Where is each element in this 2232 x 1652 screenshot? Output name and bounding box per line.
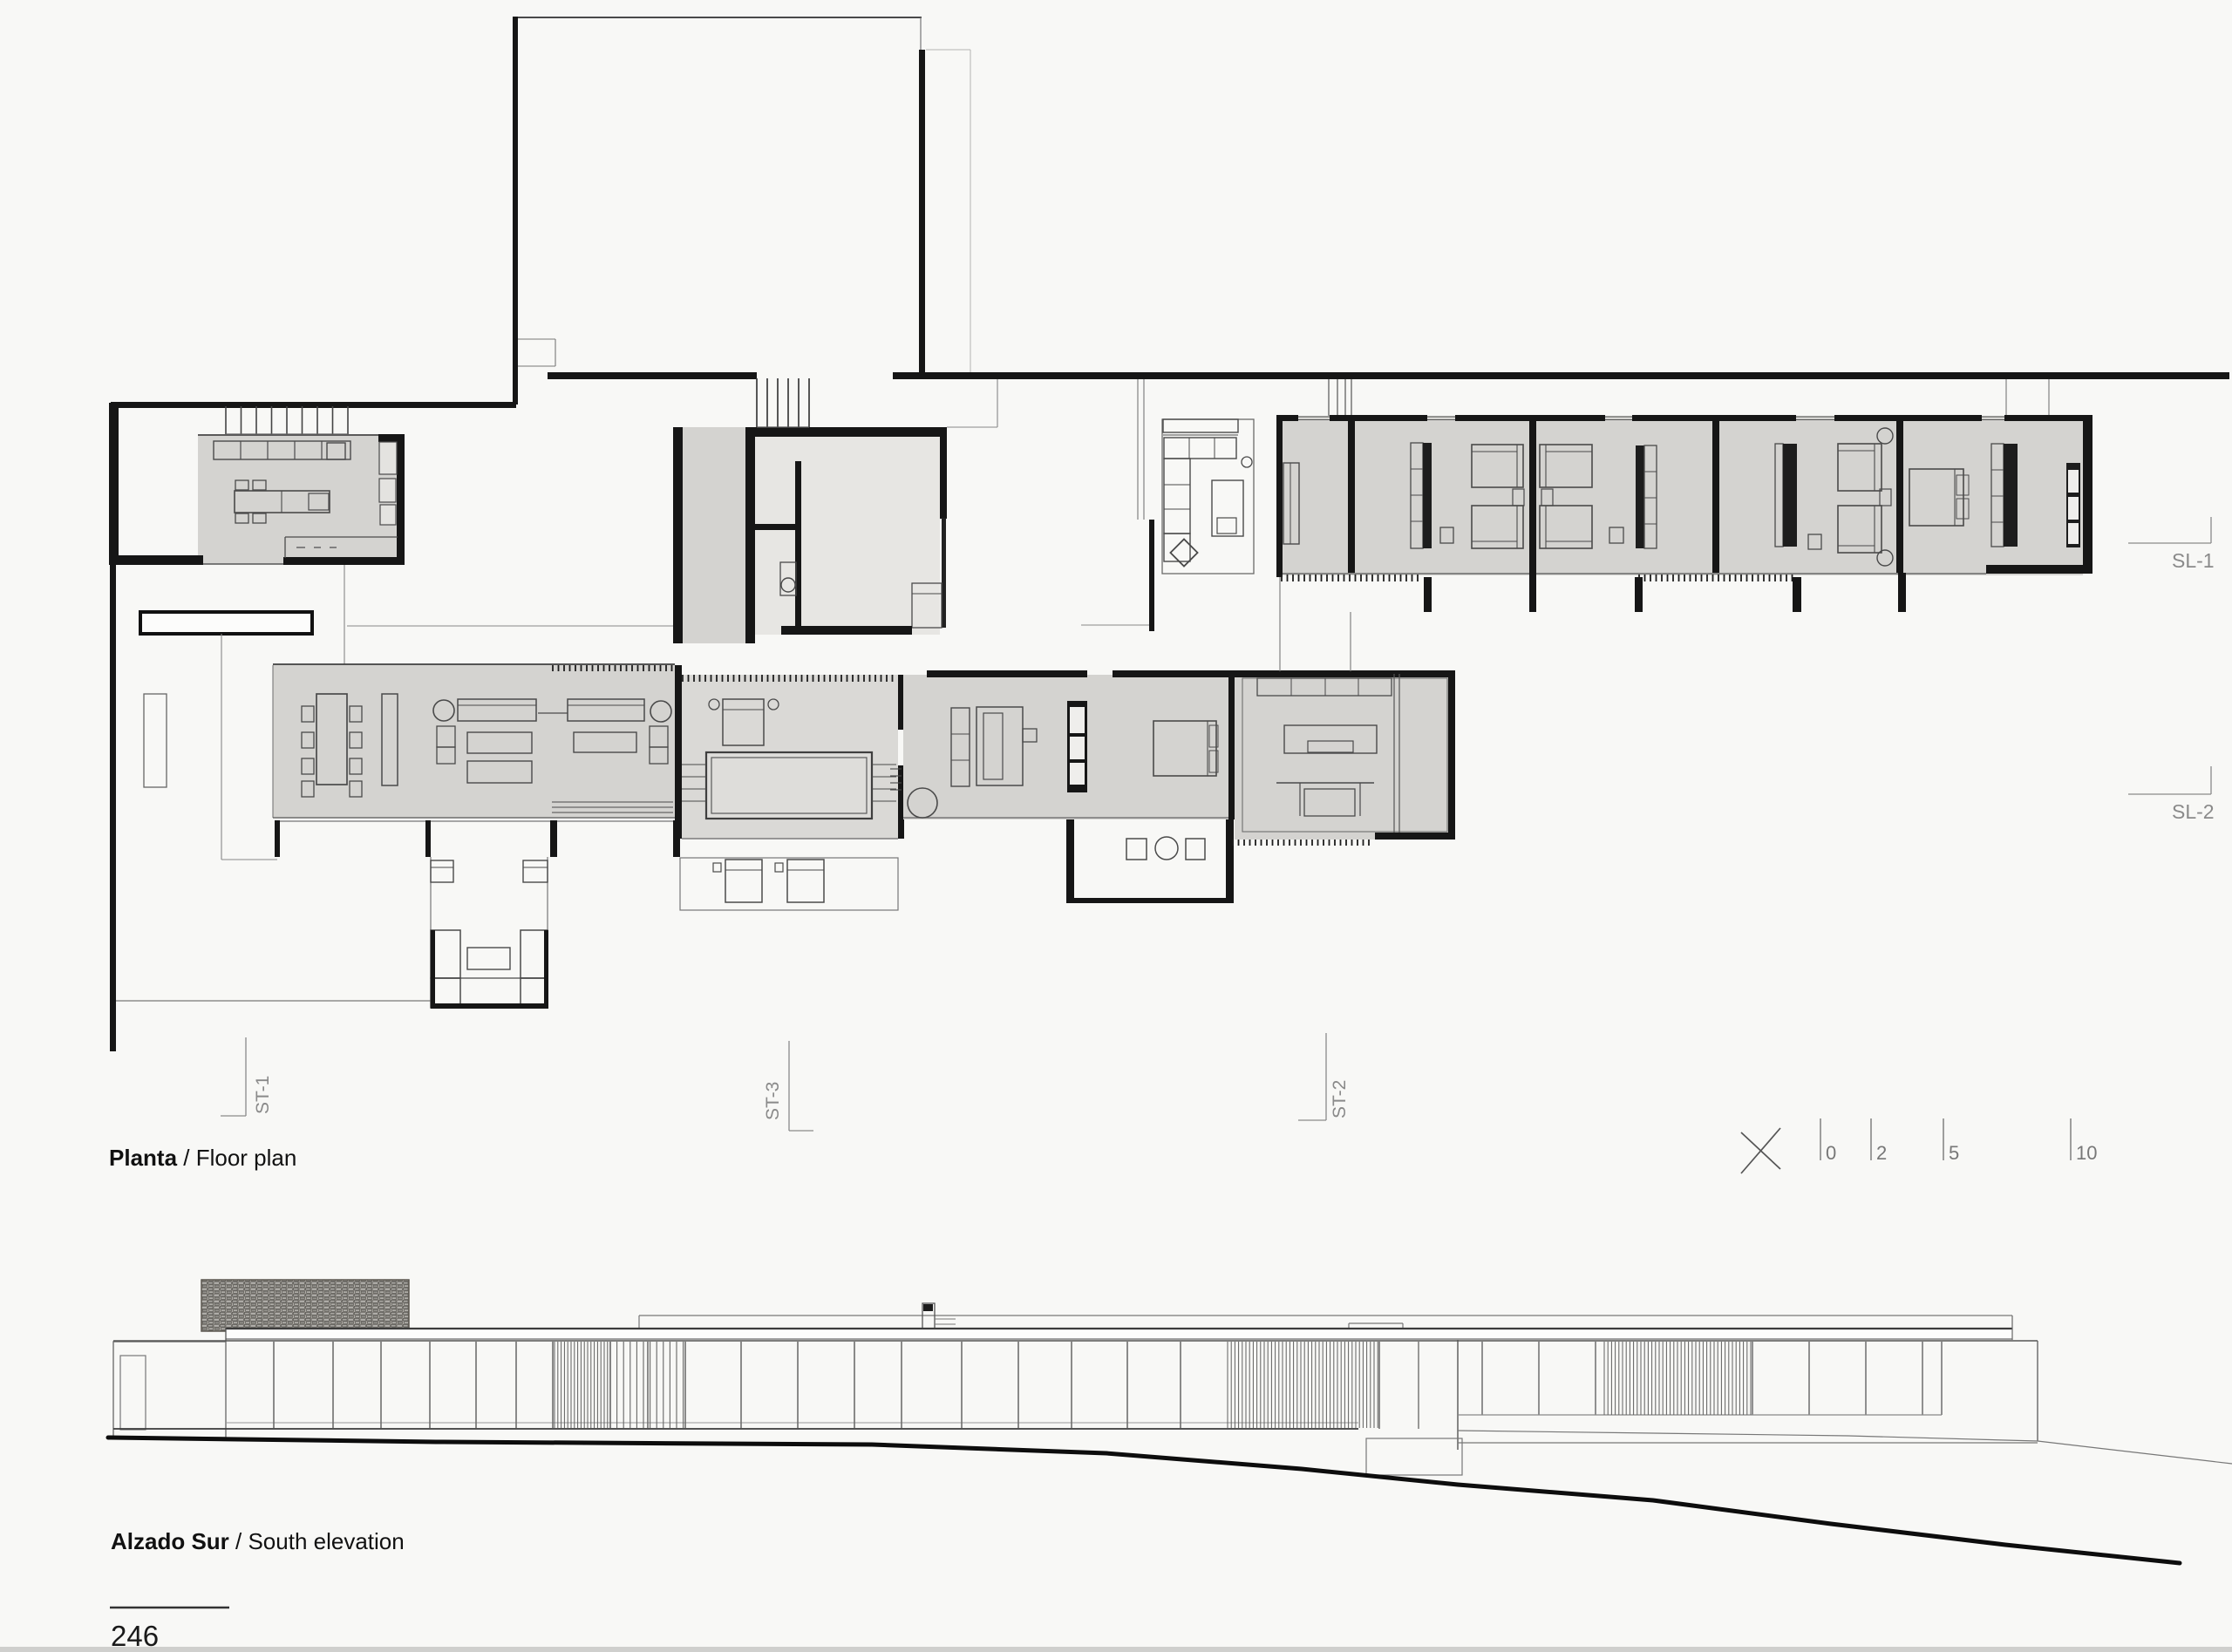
svg-text:SL-2: SL-2 [2172, 800, 2215, 823]
svg-text:Alzado Sur / South elevation: Alzado Sur / South elevation [111, 1528, 405, 1554]
svg-text:Planta / Floor plan: Planta / Floor plan [109, 1145, 296, 1171]
svg-text:SL-1: SL-1 [2172, 549, 2215, 572]
svg-text:2: 2 [1876, 1142, 1887, 1164]
svg-text:ST-2: ST-2 [1330, 1080, 1350, 1118]
svg-text:ST-1: ST-1 [253, 1076, 273, 1114]
svg-text:10: 10 [2076, 1142, 2097, 1164]
svg-text:ST-3: ST-3 [763, 1082, 783, 1120]
svg-text:0: 0 [1826, 1142, 1836, 1164]
svg-text:5: 5 [1949, 1142, 1959, 1164]
